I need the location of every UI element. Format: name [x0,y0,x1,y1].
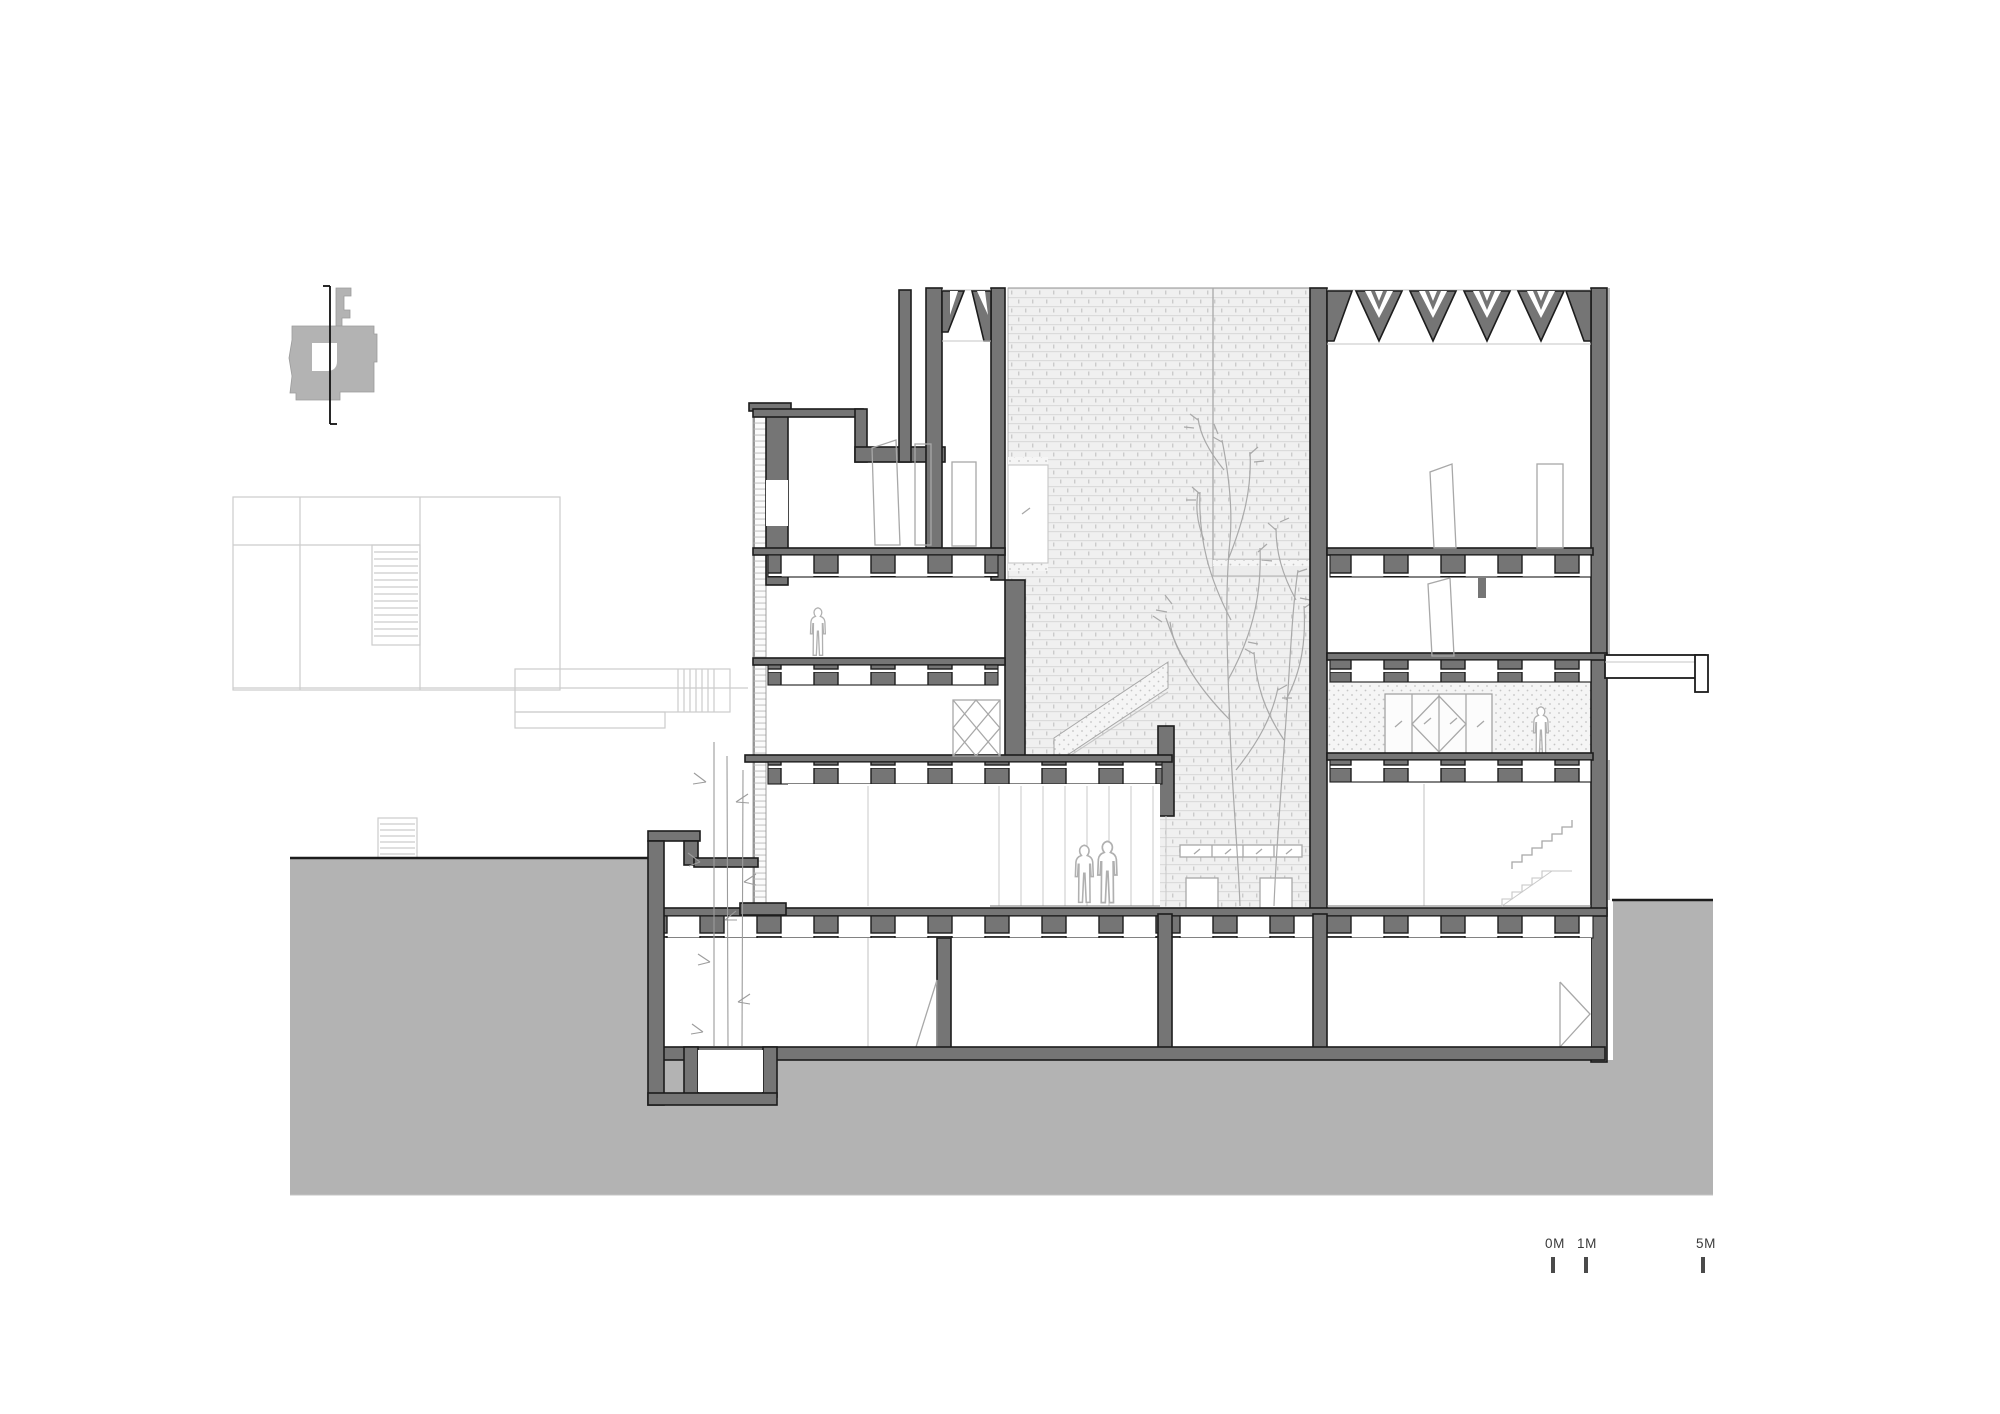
basement-divider-wall [937,938,951,1048]
scale-label-1m: 1M [1577,1236,1597,1251]
courtyard-bench [1180,845,1302,857]
foundation-wall [1313,914,1327,1049]
right-ground-rooms [1327,784,1591,906]
tower-parapet-wall [899,290,911,462]
terrace-elevation [1327,682,1591,754]
context-buildings [233,497,748,860]
right-canopy [1605,655,1708,692]
funnel-roof [942,290,991,341]
scale-bar: 0M 1M 5M [1545,1236,1716,1273]
left-tower-east-wall [991,288,1005,580]
interior-stair [1502,820,1572,906]
scale-label-0m: 0M [1545,1236,1565,1251]
roof-v-beam [1464,291,1510,341]
left-facade [749,403,791,908]
foundation-wall [1158,914,1172,1049]
context-stair-canopy [678,669,714,712]
courtyard-east-wall [1310,288,1327,910]
person-figure [810,608,825,655]
ground-floor-hall [788,784,1160,908]
roof-v-beam [1410,291,1456,341]
architectural-section-sheet: 0M 1M 5M [0,0,2000,1414]
context-stair-lower [378,818,417,860]
roof-v-beam [1356,291,1402,341]
context-stair-upper [372,545,420,645]
left-tower-west-wall [926,288,942,548]
mid-left-east-wall [1005,580,1025,765]
key-plan-upper-mass [336,288,351,326]
left-tower [926,288,1005,580]
roof-v-beam [1518,291,1564,341]
atrium-window [1008,457,1048,571]
terrace-glass-door [1385,694,1492,754]
key-plan-courtyard [312,343,337,371]
sawtooth-roof [1327,290,1591,344]
scale-tick [1701,1257,1705,1273]
scale-label-5m: 5M [1696,1236,1716,1251]
basement-floor-slab [652,1047,1605,1060]
key-plan [289,286,377,424]
section-drawing: 0M 1M 5M [0,0,2000,1414]
scale-tick [1584,1257,1588,1273]
scale-tick [1551,1257,1555,1273]
ground-floor-slab [652,903,1607,938]
cabinet-front [953,700,1000,756]
